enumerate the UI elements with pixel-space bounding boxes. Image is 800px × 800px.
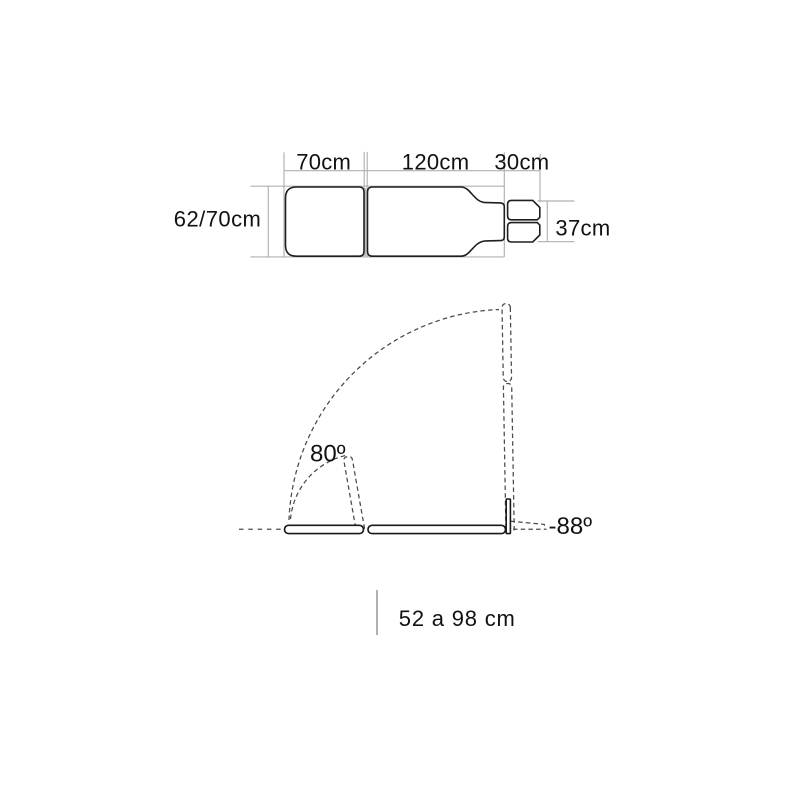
svg-text:37cm: 37cm	[555, 216, 610, 241]
svg-text:52 a 98 cm: 52 a 98 cm	[399, 606, 516, 631]
svg-text:120cm: 120cm	[402, 149, 470, 174]
svg-text:62/70cm: 62/70cm	[174, 207, 262, 232]
svg-text:70cm: 70cm	[296, 149, 351, 174]
svg-text:80º: 80º	[310, 441, 346, 468]
svg-text:-88º: -88º	[549, 513, 593, 540]
svg-text:30cm: 30cm	[494, 149, 549, 174]
